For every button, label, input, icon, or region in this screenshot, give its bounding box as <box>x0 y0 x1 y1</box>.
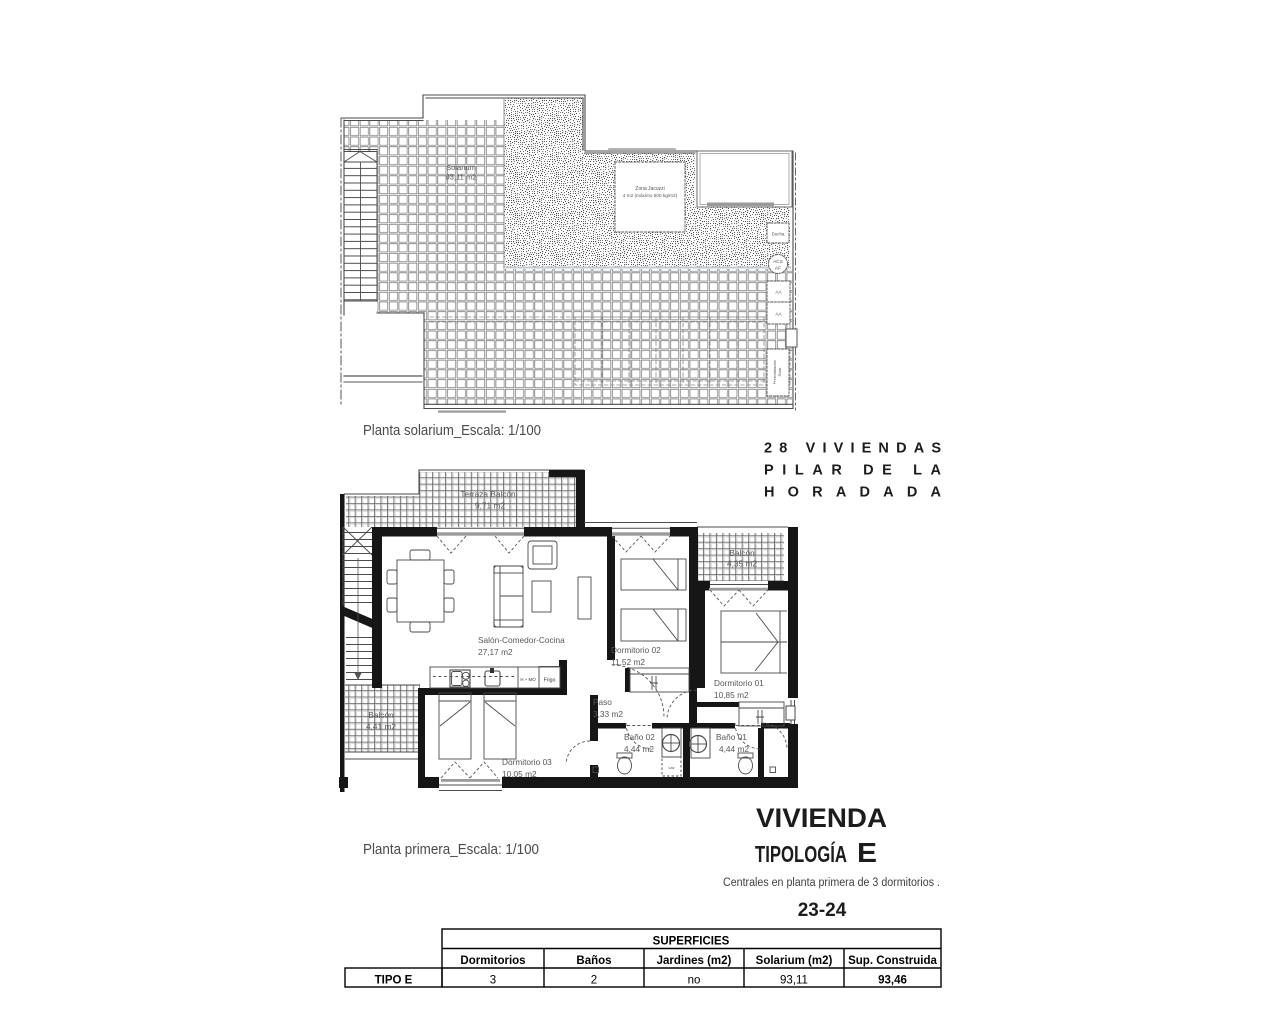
svg-text:Ducha: Ducha <box>772 232 785 237</box>
svg-text:Balcón: Balcón <box>368 710 394 720</box>
svg-text:Balcón: Balcón <box>729 548 755 558</box>
svg-text:VIVIENDA: VIVIENDA <box>756 803 887 833</box>
svg-text:4,41 m2: 4,41 m2 <box>366 722 396 732</box>
svg-text:9,71 m2: 9,71 m2 <box>475 501 505 511</box>
svg-text:SUPERFICIES: SUPERFICIES <box>653 936 730 948</box>
svg-text:Zona Jacuzzi: Zona Jacuzzi <box>635 186 664 192</box>
svg-text:Dormitorios: Dormitorios <box>460 955 525 967</box>
svg-text:Solar: Solar <box>777 367 782 377</box>
svg-text:TIPO E: TIPO E <box>375 975 413 987</box>
svg-text:10,85 m2: 10,85 m2 <box>714 690 749 700</box>
svg-text:Centrales en planta primera de: Centrales en planta primera de 3 dormito… <box>723 877 940 889</box>
svg-text:23-24: 23-24 <box>798 900 847 921</box>
svg-text:Dormitorio 01: Dormitorio 01 <box>714 678 764 688</box>
svg-text:Solarium: Solarium <box>446 163 476 172</box>
svg-text:10,05 m2: 10,05 m2 <box>502 769 537 779</box>
svg-text:AF: AF <box>775 266 781 272</box>
svg-text:Salón-Comedor-Cocina: Salón-Comedor-Cocina <box>478 635 565 645</box>
svg-text:HORADADA: HORADADA <box>764 485 942 501</box>
svg-text:H + MO: H + MO <box>520 677 536 682</box>
svg-text:Paso: Paso <box>593 697 612 707</box>
svg-text:4,44 m2: 4,44 m2 <box>624 744 654 754</box>
svg-text:Baño 01: Baño 01 <box>716 732 747 742</box>
svg-text:Baño 02: Baño 02 <box>624 732 655 742</box>
svg-text:no: no <box>688 975 701 987</box>
svg-text:AA: AA <box>775 290 782 295</box>
svg-text:Terraza Balcón: Terraza Balcón <box>460 489 516 499</box>
svg-text:Dormitorio 02: Dormitorio 02 <box>611 645 661 655</box>
svg-text:27,17 m2: 27,17 m2 <box>478 647 513 657</box>
svg-text:Baños: Baños <box>576 955 611 967</box>
svg-text:4 m2 (máximo 500 kg/m2): 4 m2 (máximo 500 kg/m2) <box>623 193 678 198</box>
svg-text:4,35 m2: 4,35 m2 <box>727 559 757 569</box>
svg-text:3,33 m2: 3,33 m2 <box>593 709 623 719</box>
svg-text:PILAR DE LA: PILAR DE LA <box>764 463 942 479</box>
svg-text:Jardines (m2): Jardines (m2) <box>657 955 732 967</box>
svg-text:93,11: 93,11 <box>780 975 808 987</box>
svg-text:Solarium (m2): Solarium (m2) <box>756 955 833 967</box>
svg-text:AA: AA <box>775 312 782 317</box>
svg-text:2: 2 <box>591 975 597 987</box>
svg-text:4,44 m2: 4,44 m2 <box>719 744 749 754</box>
svg-text:ACS: ACS <box>773 259 783 265</box>
svg-text:Lav: Lav <box>668 766 674 770</box>
svg-text:Dormitorio 03: Dormitorio 03 <box>502 757 552 767</box>
svg-text:93,11 m2: 93,11 m2 <box>445 173 476 182</box>
svg-text:28 VIVIENDAS: 28 VIVIENDAS <box>764 441 941 457</box>
svg-text:Planta primera_Escala: 1/100: Planta primera_Escala: 1/100 <box>363 842 539 858</box>
svg-text:Frigo: Frigo <box>544 678 556 684</box>
svg-text:Sup. Construida: Sup. Construida <box>848 955 937 967</box>
svg-text:93,46: 93,46 <box>878 975 907 987</box>
svg-text:TIPOLOGÍA: TIPOLOGÍA <box>755 840 847 867</box>
svg-text:11,52 m2: 11,52 m2 <box>611 657 645 667</box>
svg-text:3: 3 <box>490 975 496 987</box>
svg-text:Planta solarium_Escala: 1/100: Planta solarium_Escala: 1/100 <box>363 423 541 439</box>
svg-text:E: E <box>857 837 877 868</box>
